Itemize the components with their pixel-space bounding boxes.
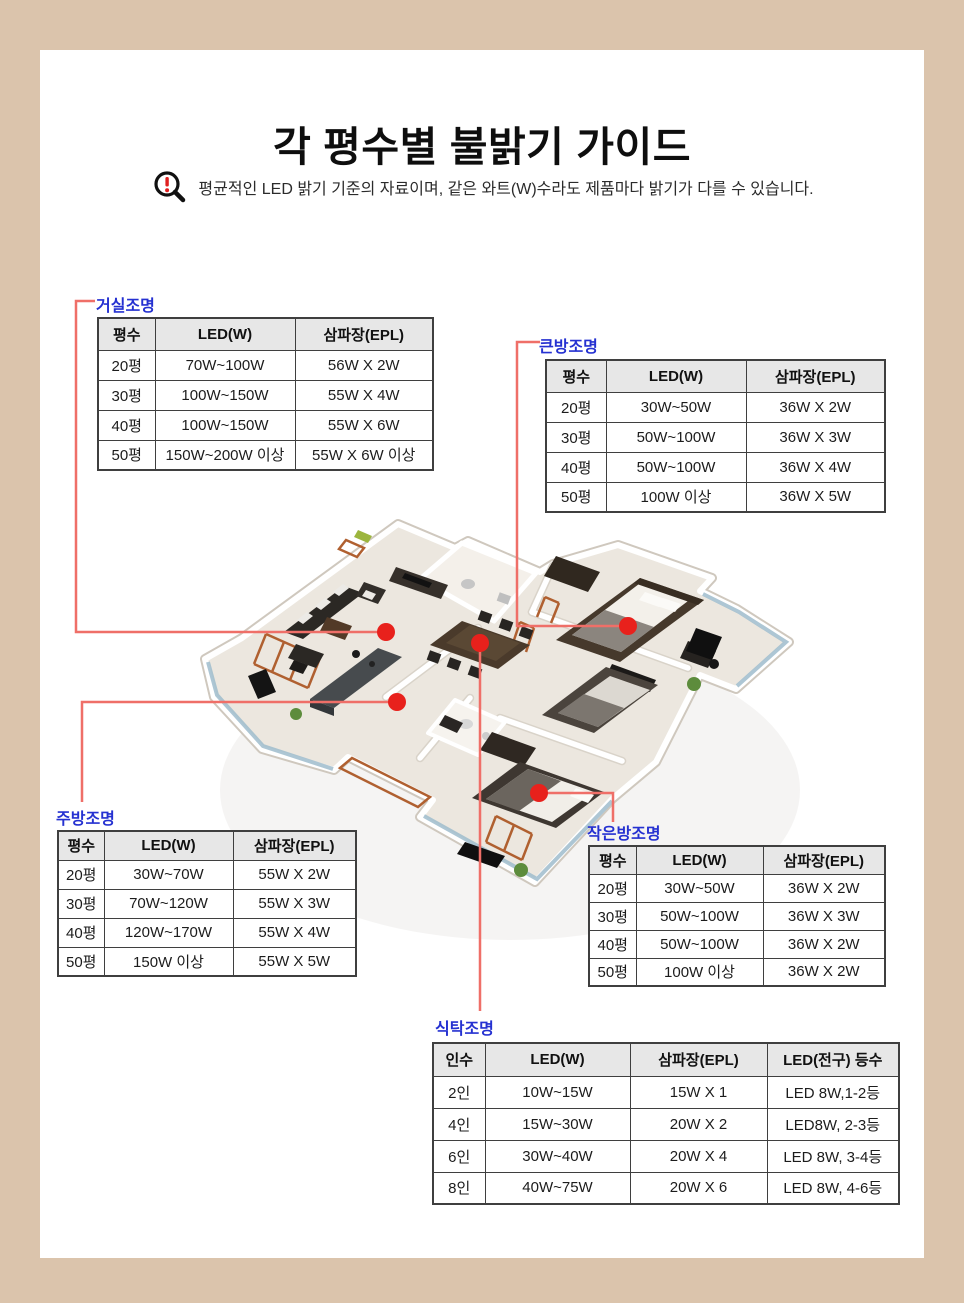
table-row: 20평30W~70W55W X 2W [58, 860, 356, 889]
table-cell: 36W X 2W [763, 874, 885, 902]
column-header: 평수 [546, 360, 606, 392]
table-cell: 15W X 1 [630, 1076, 767, 1108]
table-cell: 20평 [589, 874, 636, 902]
table-cell: 70W~120W [104, 889, 233, 918]
table-cell: 70W~100W [155, 350, 295, 380]
table-cell: 40평 [98, 410, 155, 440]
table-cell: 36W X 2W [746, 392, 885, 422]
table-cell: 50평 [589, 958, 636, 986]
table-cell: 50W~100W [636, 902, 763, 930]
table-cell: 30평 [98, 380, 155, 410]
table-row: 4인15W~30W20W X 2LED8W, 2-3등 [433, 1108, 899, 1140]
column-header: 삼파장(EPL) [763, 846, 885, 874]
table-cell: 36W X 4W [746, 452, 885, 482]
table-cell: LED 8W, 4-6등 [767, 1172, 899, 1204]
table-cell: 4인 [433, 1108, 485, 1140]
table-cell: 20W X 4 [630, 1140, 767, 1172]
table-cell: 150W 이상 [104, 947, 233, 976]
table-cell: 100W~150W [155, 380, 295, 410]
table-row: 20평30W~50W36W X 2W [546, 392, 885, 422]
table-row: 40평50W~100W36W X 2W [589, 930, 885, 958]
table-cell: 50W~100W [606, 422, 746, 452]
table-cell: 55W X 2W [233, 860, 356, 889]
table-cell: 50W~100W [636, 930, 763, 958]
table-cell: 55W X 6W 이상 [295, 440, 433, 470]
table-cell: 50W~100W [606, 452, 746, 482]
table-cell: 40평 [589, 930, 636, 958]
table-cell: 55W X 3W [233, 889, 356, 918]
magnifier-exclamation-icon [150, 168, 188, 206]
table-cell: 36W X 3W [763, 902, 885, 930]
column-header: 평수 [589, 846, 636, 874]
page-title: 각 평수별 불밝기 가이드 [0, 113, 964, 173]
table-row: 2인10W~15W15W X 1LED 8W,1-2등 [433, 1076, 899, 1108]
table-cell: LED8W, 2-3등 [767, 1108, 899, 1140]
small-room-lighting-table: 평수LED(W)삼파장(EPL)20평30W~50W36W X 2W30평50W… [588, 845, 886, 987]
column-header: LED(W) [155, 318, 295, 350]
table-row: 20평30W~50W36W X 2W [589, 874, 885, 902]
section-label-dining: 식탁조명 [435, 1015, 494, 1039]
table-cell: 30W~40W [485, 1140, 630, 1172]
table-row: 20평70W~100W56W X 2W [98, 350, 433, 380]
table-cell: 2인 [433, 1076, 485, 1108]
table-cell: 20W X 2 [630, 1108, 767, 1140]
table-cell: 100W~150W [155, 410, 295, 440]
table-cell: 100W 이상 [606, 482, 746, 512]
table-cell: 15W~30W [485, 1108, 630, 1140]
table-row: 40평120W~170W55W X 4W [58, 918, 356, 947]
table-cell: 55W X 5W [233, 947, 356, 976]
table-cell: LED 8W,1-2등 [767, 1076, 899, 1108]
table-cell: 36W X 2W [763, 930, 885, 958]
section-label-small-room: 작은방조명 [587, 820, 661, 844]
table-cell: 30평 [546, 422, 606, 452]
table-cell: 20평 [98, 350, 155, 380]
column-header: LED(W) [606, 360, 746, 392]
table-cell: 30평 [589, 902, 636, 930]
column-header: 삼파장(EPL) [295, 318, 433, 350]
table-cell: 100W 이상 [636, 958, 763, 986]
table-cell: 40평 [546, 452, 606, 482]
table-cell: 55W X 4W [295, 380, 433, 410]
column-header: LED(W) [636, 846, 763, 874]
kitchen-lighting-table: 평수LED(W)삼파장(EPL)20평30W~70W55W X 2W30평70W… [57, 830, 357, 977]
table-cell: 20평 [58, 860, 104, 889]
table-row: 50평100W 이상36W X 5W [546, 482, 885, 512]
table-cell: 55W X 6W [295, 410, 433, 440]
table-row: 6인30W~40W20W X 4LED 8W, 3-4등 [433, 1140, 899, 1172]
living-lighting-table: 평수LED(W)삼파장(EPL)20평70W~100W56W X 2W30평10… [97, 317, 434, 471]
column-header: 평수 [98, 318, 155, 350]
table-row: 40평100W~150W55W X 6W [98, 410, 433, 440]
table-cell: 40평 [58, 918, 104, 947]
table-cell: 30W~70W [104, 860, 233, 889]
column-header: LED(W) [485, 1043, 630, 1076]
notice-text: 평균적인 LED 밝기 기준의 자료이며, 같은 와트(W)수라도 제품마다 밝… [198, 175, 813, 199]
table-cell: 10W~15W [485, 1076, 630, 1108]
dining-lighting-table: 인수LED(W)삼파장(EPL)LED(전구) 등수2인10W~15W15W X… [432, 1042, 900, 1205]
table-cell: 40W~75W [485, 1172, 630, 1204]
infographic-page: { "frame": { "background": "#dbc4ac", "p… [0, 0, 964, 1303]
table-cell: 50평 [58, 947, 104, 976]
table-row: 50평150W~200W 이상55W X 6W 이상 [98, 440, 433, 470]
big-room-lighting-table: 평수LED(W)삼파장(EPL)20평30W~50W36W X 2W30평50W… [545, 359, 886, 513]
table-row: 50평100W 이상36W X 2W [589, 958, 885, 986]
column-header: LED(W) [104, 831, 233, 860]
column-header: 평수 [58, 831, 104, 860]
notice-row: 평균적인 LED 밝기 기준의 자료이며, 같은 와트(W)수라도 제품마다 밝… [0, 168, 964, 206]
section-label-kitchen: 주방조명 [56, 805, 115, 829]
table-cell: 55W X 4W [233, 918, 356, 947]
table-cell: 36W X 3W [746, 422, 885, 452]
table-cell: 36W X 5W [746, 482, 885, 512]
table-cell: 30W~50W [606, 392, 746, 422]
column-header: 삼파장(EPL) [746, 360, 885, 392]
table-row: 30평50W~100W36W X 3W [589, 902, 885, 930]
section-label-big-room: 큰방조명 [539, 333, 598, 357]
table-cell: 50평 [546, 482, 606, 512]
table-cell: 56W X 2W [295, 350, 433, 380]
table-row: 50평150W 이상55W X 5W [58, 947, 356, 976]
table-row: 30평70W~120W55W X 3W [58, 889, 356, 918]
table-cell: 8인 [433, 1172, 485, 1204]
column-header: LED(전구) 등수 [767, 1043, 899, 1076]
table-cell: 120W~170W [104, 918, 233, 947]
table-cell: 150W~200W 이상 [155, 440, 295, 470]
table-row: 30평50W~100W36W X 3W [546, 422, 885, 452]
table-cell: 30평 [58, 889, 104, 918]
column-header: 인수 [433, 1043, 485, 1076]
table-row: 30평100W~150W55W X 4W [98, 380, 433, 410]
table-cell: 50평 [98, 440, 155, 470]
table-cell: 36W X 2W [763, 958, 885, 986]
table-cell: 6인 [433, 1140, 485, 1172]
section-label-living: 거실조명 [96, 292, 155, 316]
table-cell: 20W X 6 [630, 1172, 767, 1204]
table-cell: 30W~50W [636, 874, 763, 902]
table-row: 40평50W~100W36W X 4W [546, 452, 885, 482]
table-row: 8인40W~75W20W X 6LED 8W, 4-6등 [433, 1172, 899, 1204]
column-header: 삼파장(EPL) [630, 1043, 767, 1076]
table-cell: 20평 [546, 392, 606, 422]
table-cell: LED 8W, 3-4등 [767, 1140, 899, 1172]
column-header: 삼파장(EPL) [233, 831, 356, 860]
